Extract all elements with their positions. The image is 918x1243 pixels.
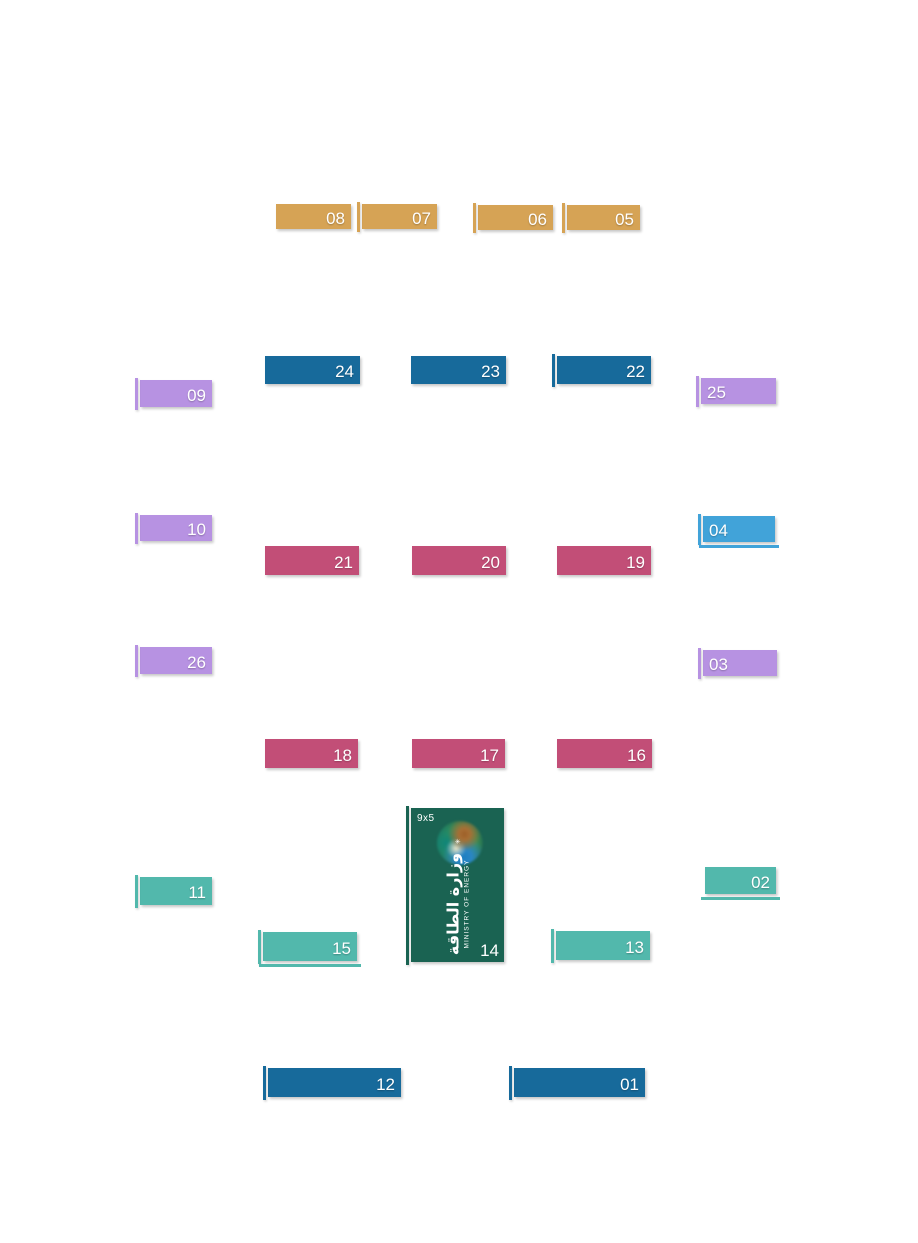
booth-09[interactable]: 09 <box>140 380 212 407</box>
booth-number: 13 <box>556 936 650 956</box>
ministry-name-english: MINISTRY OF ENERGY <box>461 839 471 969</box>
booth-number: 04 <box>703 519 775 539</box>
booth-edge-bar <box>473 203 476 233</box>
booth-edge-bar <box>135 875 138 908</box>
booth-edge-bar <box>551 929 554 963</box>
booth-edge-bar <box>135 513 138 544</box>
booth-number: 21 <box>265 551 359 571</box>
booth-edge-bar <box>263 1066 266 1100</box>
booth-edge-bar <box>509 1066 512 1100</box>
booth-edge-bar <box>698 514 701 545</box>
booth-number: 10 <box>140 518 212 538</box>
booth-05[interactable]: 05 <box>567 205 640 230</box>
floor-plan-canvas: 080706052423220925100421201926031817169x… <box>0 0 918 1243</box>
booth-number: 08 <box>276 207 351 227</box>
booth-01[interactable]: 01 <box>514 1068 645 1097</box>
ministry-name-arabic: وزارة الطاقة <box>444 839 462 969</box>
booth-edge-bar <box>135 378 138 410</box>
booth-number: 09 <box>140 384 212 404</box>
booth-16[interactable]: 16 <box>557 739 652 768</box>
booth-07[interactable]: 07 <box>362 204 437 229</box>
booth-03[interactable]: 03 <box>703 650 777 676</box>
booth-10[interactable]: 10 <box>140 515 212 541</box>
booth-14-ministry-of-energy[interactable]: 9x5✳وزارة الطاقةMINISTRY OF ENERGY14 <box>411 808 504 962</box>
booth-26[interactable]: 26 <box>140 647 212 674</box>
booth-number: 25 <box>701 381 776 401</box>
booth-number: 03 <box>703 653 777 673</box>
booth-number: 02 <box>705 871 776 891</box>
booth-20[interactable]: 20 <box>412 546 506 575</box>
booth-06[interactable]: 06 <box>478 205 553 230</box>
booth-size-label: 9x5 <box>417 813 435 824</box>
booth-12[interactable]: 12 <box>268 1068 401 1097</box>
booth-24[interactable]: 24 <box>265 356 360 384</box>
booth-19[interactable]: 19 <box>557 546 651 575</box>
booth-edge-bar <box>357 202 360 232</box>
booth-number: 07 <box>362 207 437 227</box>
booth-edge-bar <box>698 648 701 679</box>
booth-25[interactable]: 25 <box>701 378 776 404</box>
booth-edge-bar <box>562 203 565 233</box>
booth-number: 26 <box>140 651 212 671</box>
booth-17[interactable]: 17 <box>412 739 505 768</box>
booth-08[interactable]: 08 <box>276 204 351 229</box>
booth-number: 18 <box>265 744 358 764</box>
booth-edge-bar <box>552 354 555 387</box>
booth-21[interactable]: 21 <box>265 546 359 575</box>
booth-number: 17 <box>412 744 505 764</box>
booth-number: 20 <box>412 551 506 571</box>
booth-number: 14 <box>480 942 499 959</box>
booth-number: 05 <box>567 208 640 228</box>
booth-number: 01 <box>514 1073 645 1093</box>
booth-18[interactable]: 18 <box>265 739 358 768</box>
booth-11[interactable]: 11 <box>140 877 212 905</box>
booth-15[interactable]: 15 <box>263 932 357 961</box>
booth-number: 11 <box>140 881 212 901</box>
booth-number: 24 <box>265 360 360 380</box>
booth-04[interactable]: 04 <box>703 516 775 542</box>
booth-number: 15 <box>263 937 357 957</box>
booth-number: 06 <box>478 208 553 228</box>
booth-22[interactable]: 22 <box>557 356 651 384</box>
booth-underline <box>259 964 361 967</box>
booth-02[interactable]: 02 <box>705 867 776 894</box>
booth-edge-bar <box>135 645 138 677</box>
booth-13[interactable]: 13 <box>556 931 650 960</box>
booth-23[interactable]: 23 <box>411 356 506 384</box>
booth-number: 23 <box>411 360 506 380</box>
ministry-name: وزارة الطاقةMINISTRY OF ENERGY <box>444 839 471 969</box>
booth-underline <box>699 545 779 548</box>
booth-number: 12 <box>268 1073 401 1093</box>
booth-underline <box>701 897 780 900</box>
booth-edge-bar <box>406 806 409 965</box>
booth-edge-bar <box>696 376 699 407</box>
booth-number: 22 <box>557 360 651 380</box>
booth-edge-bar <box>258 930 261 964</box>
booth-number: 16 <box>557 744 652 764</box>
booth-number: 19 <box>557 551 651 571</box>
